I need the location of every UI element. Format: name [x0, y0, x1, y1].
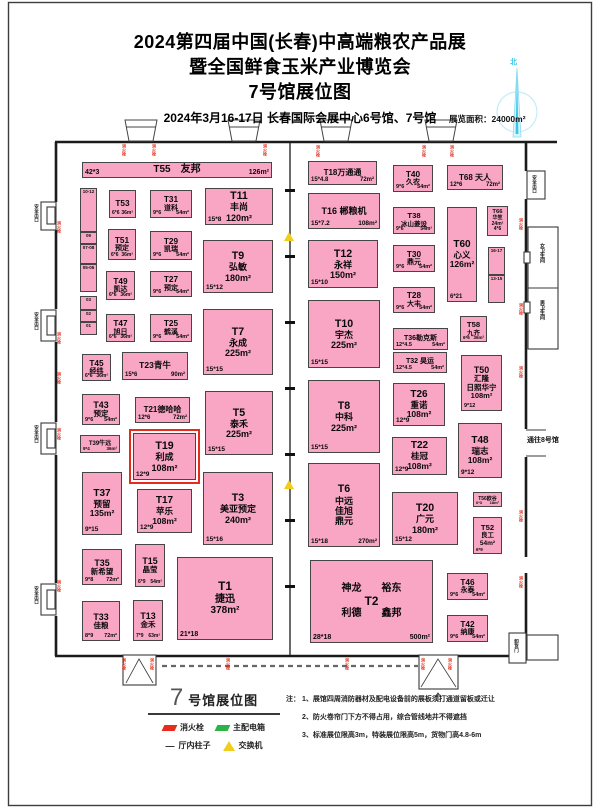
booth-T35: T35新希望9*872m² [82, 549, 122, 585]
booth-dims: 12*9 [395, 467, 408, 474]
booth-dims: 15*15 [311, 360, 328, 367]
booth-T5: T5泰禾225m²15*15 [205, 391, 273, 455]
booth-T60: T60心义126m²6*21 [447, 207, 477, 302]
booth-T36: T36勒克斯12*4.554m² [393, 328, 448, 350]
booth-line: T8 [338, 400, 350, 412]
switch-marker [284, 480, 294, 489]
booth-area: 54m² [417, 185, 430, 191]
booth-area: 36m² [120, 293, 132, 298]
booth-line: T21德哈哈 [144, 405, 182, 414]
booth-line: 捷迅 [215, 594, 235, 606]
booth-line: T12 [334, 248, 352, 260]
booth-line: 225m² [225, 348, 251, 358]
booth-area: 270m² [358, 539, 377, 546]
booth-T56: T56欧谷6*318m² [473, 492, 502, 507]
booth-dims: 15*12 [395, 537, 412, 544]
booth-T29: T29凯瑞9*654m² [150, 231, 192, 260]
booth-line: 永成 [229, 338, 247, 348]
booth-line: 中科 [335, 412, 353, 422]
booth-area: 36m² [106, 447, 117, 452]
booth-T51: T51预定6*636m² [108, 229, 136, 260]
booth-dims: 12*4.5 [396, 343, 412, 349]
booth-area: 63m² [148, 634, 160, 639]
booth-line: 240m² [225, 515, 251, 525]
booth-dims: 15*15 [311, 445, 328, 452]
booth-line: 126m² [450, 260, 475, 270]
fire-hydrant-marker: 消火栓 [448, 658, 452, 670]
booth-dims: 9*4 [83, 447, 90, 452]
exhibition-area-note: 展览面积：24000m² [449, 113, 526, 125]
booth-line: 永祥 [334, 260, 352, 270]
fire-hydrant-marker: 消火栓 [345, 658, 349, 670]
booth-dims: 12*4.5 [396, 366, 412, 372]
booth-line: 225m² [331, 340, 357, 350]
booth-T38: T38冰山菱设9*654m² [393, 207, 435, 234]
booth-line: T29 [164, 237, 178, 247]
notes-lines: 1、展馆四周消防器材及配电设备前的展板须打通道留板或迁让 2、防火卷帘门下方不得… [302, 694, 495, 748]
exhibition-title-line3: 7号馆展位图 [0, 80, 600, 105]
booth-line: T1 [218, 580, 232, 594]
booth-dims: 6*21 [450, 294, 462, 300]
legend-label: 消火栓 [180, 722, 204, 733]
booth-dims: 6*9 [138, 580, 146, 585]
booth-T48: T48瑞志108m²9*12 [458, 423, 502, 478]
booth-line: T53 [115, 199, 129, 209]
booth-dims: 9*6 [153, 211, 161, 217]
booth-dims: 9*15 [85, 527, 98, 534]
fire-hydrant-marker: 消火栓 [122, 658, 126, 670]
booth-area: 54m² [419, 265, 432, 271]
booth-dims: 42*3 [85, 169, 99, 176]
map-label: 安全出口 [532, 175, 537, 193]
booth-dims: 15*10 [311, 280, 328, 287]
booth-line: T19 [155, 440, 173, 452]
fire-hydrant-marker: 消火栓 [57, 372, 61, 384]
legend-label: 厅内柱子 [179, 740, 211, 751]
booth-T52: T52良工54m²6*9 [473, 517, 502, 554]
booth-area: 54m² [420, 227, 432, 232]
booth-line: T40 [406, 170, 420, 180]
booth-line: T30 [407, 250, 421, 260]
booth-dims: 8*9 [85, 634, 93, 640]
booth-dims: 12*9 [136, 472, 149, 479]
strip-booth-16-17: 16-17 [488, 247, 505, 275]
booth-area: 500m² [410, 634, 430, 641]
fire-hydrant-marker: 消火栓 [263, 144, 267, 156]
booth-T49: T49凯达6*636m² [106, 271, 135, 300]
fire-hydrant-marker: 消火栓 [57, 221, 61, 233]
booth-line: T28 [407, 291, 421, 301]
booth-area: 36m² [121, 211, 133, 216]
booth-area: 54m² [419, 306, 432, 312]
booth-T55: T55 友邦42*3126m² [82, 162, 272, 178]
strip-booth-13-15: 13-15 [488, 275, 505, 303]
exhibition-title-line1: 2024第四届中国(长春)中高端粮农产品展 [0, 30, 600, 55]
fire-hydrant-marker: 消火栓 [122, 144, 126, 156]
booth-area: 72m² [104, 634, 117, 640]
booth-area: 54m² [150, 580, 162, 585]
booth-area: 72m² [360, 177, 374, 183]
booth-T33: T33佳粮8*972m² [82, 601, 120, 641]
fire-hydrant-marker: 消火栓 [57, 428, 61, 440]
booth-dims: 12*9 [396, 418, 409, 425]
booth-line: 金禾 [141, 621, 156, 630]
booth-T12: T12永祥150m²15*10 [308, 240, 378, 288]
booth-line: T58 [467, 321, 480, 330]
legend-item-column: —厅内柱子 [166, 740, 211, 751]
booth-dims: 7*9 [136, 634, 144, 639]
booth-line: T10 [335, 318, 353, 330]
booth-T47: T47旭日6*636m² [106, 314, 135, 342]
fire-hydrant-marker: 消火栓 [422, 145, 426, 157]
booth-line: T47 [113, 319, 127, 329]
map-label: 男卫生间 [539, 300, 544, 320]
booth-line: 225m² [226, 429, 252, 439]
distribution-box-icon [215, 725, 231, 731]
booth-line: T5 [233, 407, 245, 419]
booth-line: 378m² [211, 605, 240, 617]
booth-line: 108m² [152, 517, 177, 527]
booth-line: 中远 [335, 496, 353, 506]
booth-T18: T18万通通15*4.872m² [308, 161, 377, 185]
booth-T50: T50汇隆日照华宁108m²9*12 [461, 355, 502, 411]
booth-dims: 9*6 [396, 227, 404, 232]
booth-dims: 15*8 [208, 217, 221, 224]
booth-area: 36m² [96, 374, 108, 379]
fire-hydrant-marker: 消火栓 [519, 510, 523, 522]
booth-T37: T37预留135m²9*15 [82, 472, 122, 535]
booth-line: T23青牛 [139, 361, 171, 371]
booth-area: 54m² [104, 418, 117, 424]
booth-line: T3 [232, 492, 244, 504]
legend-title: 7号馆展位图 [148, 684, 280, 715]
booth-area: 36m² [473, 336, 484, 341]
booth-T9: T9弘敏180m²15*12 [203, 240, 273, 293]
map-label: 女卫生间 [539, 243, 544, 263]
booth-line: 225m² [331, 423, 357, 433]
booth-T21: T21德哈哈12*672m² [135, 397, 190, 423]
fire-hydrant-marker: 消火栓 [519, 218, 523, 230]
fire-hydrant-marker: 消火栓 [152, 144, 156, 156]
booth-line: T49 [113, 277, 127, 287]
booth-line: T38 [407, 212, 420, 221]
booth-dims: 9*6 [450, 635, 458, 641]
fire-hydrant-marker: 消火栓 [519, 303, 523, 315]
booth-line: 4*6 [494, 227, 502, 233]
column-icon: — [166, 741, 175, 751]
booth-line: 新希望 [91, 568, 114, 577]
booth-area: 90m² [171, 372, 185, 378]
booth-dims: 28*18 [313, 634, 331, 641]
booth-T19: T19利成108m²12*9 [133, 433, 196, 480]
booth-dims: 9*6 [396, 185, 404, 191]
booth-line: T31 [164, 195, 178, 205]
booth-T16: T16 郴粮机15*7.2108m² [308, 193, 380, 229]
booth-line: 弘敏 [229, 262, 247, 272]
booth-line: 佳粮 [94, 622, 109, 631]
booth-T58: T58九齐6*636m² [460, 316, 487, 342]
booth-area: 54m² [472, 635, 485, 641]
booth-line: T11 [230, 190, 248, 202]
fire-hydrant-marker: 消火栓 [316, 145, 320, 157]
map-legend: 7号馆展位图 消火栓 主配电箱 —厅内柱子 交换机 [148, 684, 280, 751]
booth-line: T2 [365, 595, 379, 609]
fire-hydrant-marker: 消火栓 [421, 658, 425, 670]
booth-area: 54m² [176, 290, 189, 296]
booth-line: 180m² [412, 525, 438, 535]
booth-dims: 12*9 [140, 525, 153, 532]
booth-line: 120m² [226, 213, 252, 223]
booth-dims: 9*6 [153, 335, 161, 341]
booth-line: 晶莹 [143, 566, 158, 575]
left-exit-doors [41, 202, 56, 615]
booth-T13: T13金禾7*963m² [133, 600, 163, 641]
booth-dims: 12*6 [450, 182, 462, 188]
fire-hydrant-marker: 消火栓 [450, 145, 454, 157]
fire-hydrant-marker: 消火栓 [57, 580, 61, 592]
legend-label: 交换机 [239, 740, 263, 751]
booth-dims: 6*6 [111, 253, 119, 258]
booth-area: 36m² [120, 335, 132, 340]
booth-line: 神龙 裕东 [342, 583, 402, 595]
fire-hydrant-marker: 消火栓 [519, 366, 523, 378]
booth-T43: T43预定9*654m² [82, 394, 120, 425]
header: 2024第四届中国(长春)中高端粮农产品展 暨全国鲜食玉米产业博览会 7号馆展位… [0, 30, 600, 126]
booth-T1: T1捷迅378m²21*18 [177, 557, 273, 640]
booth-line: T20 [416, 502, 434, 514]
booth-line: T6 [338, 483, 350, 495]
map-label: 安全出口 [34, 312, 39, 330]
fire-hydrant-marker: 消火栓 [150, 658, 154, 670]
booth-line: T51 [115, 236, 129, 246]
booth-line: T9 [232, 250, 244, 262]
booth-T7: T7永成225m²15*15 [203, 309, 273, 375]
booth-dims: 12*6 [138, 415, 150, 421]
booth-dims: 9*6 [396, 265, 404, 271]
booth-dims: 9*6 [153, 253, 161, 259]
booth-dims: 9*12 [461, 470, 474, 477]
booth-area: 54m² [176, 211, 189, 217]
note-line-3: 3、标准展位限高3m，特装展位限高5m，货物门高4.8-6m [302, 730, 495, 740]
booth-dims: 15*12 [206, 285, 223, 292]
strip-booth-09: 09 [80, 232, 97, 244]
booth-line: T48 [471, 435, 488, 447]
booth-T26: T26重诺108m²12*9 [393, 383, 445, 426]
booth-area: 54m² [432, 343, 445, 349]
booth-line: T7 [232, 326, 244, 338]
booth-line: T60 [453, 239, 470, 251]
booth-T25: T25鹤溪9*654m² [150, 314, 192, 342]
booth-line: T42 [460, 620, 474, 630]
booth-area: 126m² [249, 169, 269, 176]
note-line-2: 2、防火卷帘门下方不得占用，综合管线地井不得遮挡 [302, 712, 495, 722]
booth-dims: 15*16 [206, 537, 223, 544]
booth-dims: 9*6 [450, 593, 458, 599]
booth-T20: T20广元180m²15*12 [392, 492, 458, 545]
booth-line: T18万通通 [324, 168, 362, 177]
map-label: 安全出口 [34, 425, 39, 443]
map-label: 卸货门 [514, 639, 519, 653]
legend-label: 主配电箱 [233, 722, 265, 733]
booth-line: 108m² [468, 456, 493, 466]
booth-area: 54m² [176, 253, 189, 259]
booth-area: 72m² [173, 415, 187, 421]
booth-line: T68 天人 [459, 173, 491, 182]
booth-T46: T46永泰9*654m² [447, 573, 488, 600]
booth-dims: 9*6 [85, 418, 93, 424]
booth-T28: T28大丰9*654m² [393, 287, 435, 313]
booth-T32: T32 昊运12*4.554m² [393, 352, 447, 373]
notes-block: 注： 1、展馆四周消防器材及配电设备前的展板须打通道留板或迁让 2、防火卷帘门下… [286, 694, 495, 748]
right-side-rooms [509, 171, 558, 663]
booth-T6: T6中远佳旭鼎元15*18270m² [308, 463, 380, 547]
booth-T68: T68 天人12*672m² [447, 165, 503, 190]
booth-line: 108m² [471, 392, 493, 401]
booth-dims: 15*18 [311, 539, 328, 546]
strip-booth-03: 03 [80, 296, 97, 310]
booth-T8: T8中科225m²15*15 [308, 380, 380, 453]
booth-T15: T15晶莹6*954m² [135, 544, 165, 587]
booth-area: 18m² [490, 501, 499, 505]
booth-dims: 9*6 [396, 306, 404, 312]
booth-T42: T42纳康9*654m² [447, 615, 488, 642]
booth-line: 150m² [330, 270, 356, 280]
booth-area: 54m² [176, 335, 189, 341]
booth-line: T16 郴粮机 [321, 206, 366, 216]
booth-line: T45 [89, 359, 103, 369]
strip-booth-01: 01 [80, 322, 97, 335]
booth-dims: 15*7.2 [311, 221, 330, 228]
booth-dims: 6*6 [463, 336, 470, 341]
fire-hydrant-marker: 消火栓 [226, 658, 230, 670]
booth-area: 54m² [472, 593, 485, 599]
booth-dims: 9*6 [153, 290, 161, 296]
booth-line: 108m² [407, 462, 432, 472]
booth-line: T26 [410, 389, 427, 401]
legend-item-distribution-box: 主配电箱 [216, 722, 265, 733]
booth-area: 36m² [121, 253, 133, 258]
booth-line: 108m² [407, 410, 432, 420]
booth-T31: T31道科9*654m² [150, 190, 192, 218]
booth-T27: T27预定9*654m² [150, 271, 192, 297]
booth-line: 宇杰 [335, 330, 353, 340]
booth-T17: T17苹乐108m²12*9 [137, 489, 192, 533]
legend-item-switch: 交换机 [223, 740, 263, 751]
map-label: 通往8号馆 [527, 437, 559, 444]
booth-dims: 15*15 [206, 367, 223, 374]
fire-hydrant-marker: 消火栓 [57, 332, 61, 344]
booth-line: T25 [164, 319, 178, 329]
hall7-floorplan-page: 2024第四届中国(长春)中高端粮农产品展 暨全国鲜食玉米产业博览会 7号馆展位… [0, 0, 600, 810]
booth-line: 180m² [225, 273, 251, 283]
booth-T23: T23青牛15*690m² [122, 352, 188, 380]
booth-dims: 15*6 [125, 372, 137, 378]
booth-dims: 9*12 [464, 404, 475, 410]
booth-line: 鼎元 [335, 516, 353, 526]
booth-dims: 6*6 [85, 374, 93, 379]
booth-line: 108m² [151, 463, 177, 473]
hall-column-ticks [285, 189, 295, 588]
booth-dims: 6*6 [109, 335, 117, 340]
booth-dims: 9*8 [85, 578, 93, 584]
booth-line: T37 [93, 488, 110, 500]
booth-dims: 6*6 [112, 211, 120, 216]
booth-dims: 6*3 [476, 501, 482, 505]
booth-line: 广元 [416, 514, 434, 524]
booth-T66: T66华笙24m²4*6 [487, 206, 508, 236]
strip-booth-10-12: 10-12 [80, 188, 97, 232]
booth-T39: T39牛远9*436m² [80, 435, 120, 453]
booth-line: T46 [460, 578, 474, 588]
booth-line: T55 友邦 [153, 164, 200, 176]
compass-north-label: 北 [510, 57, 517, 67]
notes-prefix: 注： [286, 694, 300, 748]
map-label: 安全出口 [34, 586, 39, 604]
strip-booth-05-06: 05-06 [80, 264, 97, 292]
booth-line: T27 [164, 275, 178, 285]
booth-T45: T45经纬6*636m² [82, 354, 111, 381]
booth-area: 72m² [106, 578, 119, 584]
map-label: 安全出口 [34, 204, 39, 222]
booth-T11: T11丰尚120m²15*8 [205, 188, 273, 225]
booth-T40: T40久农9*654m² [393, 165, 433, 192]
booth-area: 72m² [486, 182, 500, 188]
legend-item-hydrant: 消火栓 [163, 722, 204, 733]
fire-hydrant-marker: 消火栓 [519, 576, 523, 588]
booth-T22: T22桂冠108m²12*9 [392, 437, 447, 475]
booth-T30: T30鼎元9*654m² [393, 245, 435, 272]
switch-icon [223, 741, 235, 751]
booth-line: 美亚预定 [220, 504, 256, 514]
booth-dims: 15*15 [208, 447, 225, 454]
fire-hydrant-icon [162, 725, 178, 731]
booth-area: 54m² [431, 366, 444, 372]
booth-dims: 6*6 [109, 293, 117, 298]
booth-line: 佳旭 [335, 506, 353, 516]
booth-line: 泰禾 [230, 419, 248, 429]
strip-booth-07-08: 07-08 [80, 244, 97, 264]
booth-dims: 15*4.8 [311, 177, 328, 183]
booth-line: 利德 鑫邦 [342, 608, 402, 620]
strip-booth-02: 02 [80, 310, 97, 322]
booth-T53: T536*636m² [109, 190, 136, 218]
booth-area: 108m² [358, 221, 377, 228]
booth-line: 135m² [90, 509, 115, 519]
booth-T3: T3美亚预定240m²15*16 [203, 472, 273, 545]
legend-title-number: 7 [170, 684, 183, 711]
booth-line: 利成 [155, 452, 173, 462]
booth-line: 丰尚 [230, 202, 248, 212]
legend-title-text: 号馆展位图 [188, 693, 258, 708]
booth-line: 良工 [481, 532, 494, 539]
switch-marker [284, 232, 294, 241]
booth-T2: 神龙 裕东T2利德 鑫邦28*18500m² [310, 560, 433, 643]
booth-dims: 6*9 [476, 548, 483, 553]
booth-T10: T10宇杰225m²15*15 [308, 300, 380, 368]
booth-dims: 21*18 [180, 631, 198, 638]
note-line-1: 1、展馆四周消防器材及配电设备前的展板须打通道留板或迁让 [302, 694, 495, 704]
